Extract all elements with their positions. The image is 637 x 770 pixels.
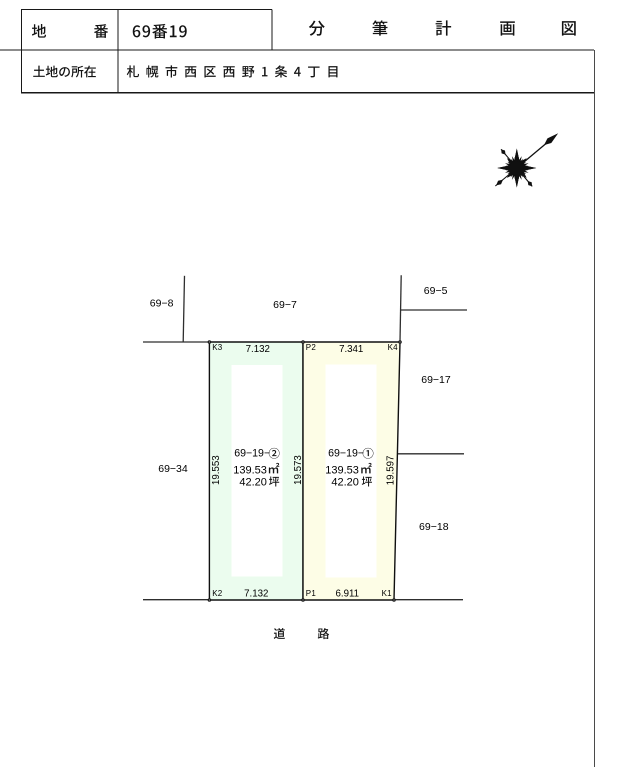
svg-text:42.20: 42.20 xyxy=(331,477,359,489)
svg-text:K2: K2 xyxy=(212,589,223,598)
svg-text:6.911: 6.911 xyxy=(336,589,360,600)
svg-text:69−8: 69−8 xyxy=(150,298,174,310)
svg-text:69−17: 69−17 xyxy=(421,374,451,386)
svg-text:69−18: 69−18 xyxy=(419,521,449,533)
svg-text:69−19−: 69−19− xyxy=(328,448,364,460)
svg-text:69−19−: 69−19− xyxy=(234,448,270,460)
svg-text:42.20: 42.20 xyxy=(239,477,267,489)
svg-text:K1: K1 xyxy=(382,589,393,598)
svg-text:K3: K3 xyxy=(212,343,223,352)
svg-text:19.597: 19.597 xyxy=(386,456,397,486)
svg-text:19.573: 19.573 xyxy=(293,455,304,485)
svg-text:P1: P1 xyxy=(306,589,317,598)
svg-text:19.553: 19.553 xyxy=(211,455,222,485)
svg-text:139.53: 139.53 xyxy=(325,464,359,476)
svg-text:139.53: 139.53 xyxy=(233,464,267,476)
svg-text:K4: K4 xyxy=(388,343,399,352)
svg-text:69−34: 69−34 xyxy=(158,463,188,475)
svg-text:69−7: 69−7 xyxy=(273,299,297,311)
svg-text:7.132: 7.132 xyxy=(246,344,270,355)
svg-text:7.132: 7.132 xyxy=(244,589,268,600)
svg-text:69−5: 69−5 xyxy=(424,285,448,297)
svg-text:P2: P2 xyxy=(306,343,317,352)
svg-text:7.341: 7.341 xyxy=(339,344,363,355)
